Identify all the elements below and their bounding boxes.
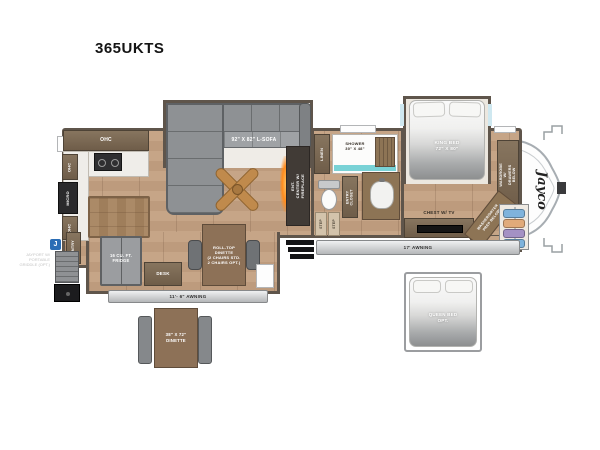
window: [488, 104, 492, 126]
kitchen-awning-label: 11'- 6" AWNING: [170, 294, 207, 299]
ohc-label: OHC: [100, 137, 112, 144]
chest-tv-label: CHEST W/ TV: [404, 210, 474, 216]
queen-bed-option: QUEEN BED OPT.: [404, 272, 482, 352]
vanity-sink: [370, 181, 394, 209]
toilet-tank: [318, 180, 340, 189]
page-title: 365UKTS: [95, 40, 164, 57]
sofa-label: 92" X 82" L-SOFA: [200, 137, 308, 144]
main-awning: 17' AWNING: [316, 240, 520, 255]
entry-steps: [286, 240, 316, 264]
dinette-table: 38" X 72" DINETTE: [154, 308, 198, 368]
ohc-cabinet: OHC: [62, 154, 78, 180]
faucet: [379, 178, 385, 182]
entry-closet: ENTRY CLOSET: [342, 176, 358, 218]
sofa-chaise: [166, 103, 224, 215]
burner: [111, 159, 119, 167]
hanging-clothes: [503, 209, 525, 218]
jayport-badge: J: [50, 239, 61, 250]
kitchen-ohc-cabinet: OHC: [63, 130, 149, 151]
shower-door: [375, 137, 395, 167]
shower: SHOWER 30" X 48": [332, 134, 398, 174]
shower-label: SHOWER 30" X 48": [335, 141, 375, 151]
desk-label: DESK: [156, 271, 169, 277]
fridge-label: 16 CU. FT. FRIDGE: [102, 253, 140, 264]
rolltop-dinette-table: ROLL-TOP DINETTE (2 CHAIRS STD. 2 CHAIRS…: [202, 224, 246, 286]
refrigerator: 16 CU. FT. FRIDGE: [100, 236, 142, 286]
freestanding-dinette-label: 38" X 72" DINETTE: [166, 332, 187, 343]
tv: [417, 225, 463, 233]
window: [340, 125, 376, 133]
jayport-mount: [55, 251, 79, 283]
kitchen-awning: 11'- 6" AWNING: [108, 290, 268, 303]
entertainment-center: ENT. CENTER W/ FIREPLACE: [286, 146, 310, 226]
burner: [98, 159, 106, 167]
hanging-clothes: [503, 229, 525, 238]
dinette-bench: [138, 316, 152, 364]
jayport-griddle: [54, 284, 80, 302]
queen-bed-label: QUEEN BED OPT.: [409, 312, 477, 324]
floorplan-canvas: 365UKTS Jayco OHC OHC MICRO: [0, 0, 600, 450]
hanging-clothes: [503, 219, 525, 228]
king-bed-label: KING BED 72" X 80": [409, 141, 485, 153]
interior-step: STEP: [315, 212, 327, 236]
interior-step: STEP: [328, 212, 340, 236]
rolltop-dinette-label: ROLL-TOP DINETTE (2 CHAIRS STD. 2 CHAIRS…: [207, 245, 240, 266]
toilet: [321, 189, 337, 210]
dinette-chair: [188, 240, 202, 270]
linen-closet: LINEN: [314, 134, 330, 174]
jayco-logo: Jayco: [534, 171, 549, 210]
window: [494, 126, 516, 133]
stove: [94, 153, 122, 171]
microwave: MICRO: [58, 182, 78, 214]
window: [256, 264, 274, 288]
chest-tv: [404, 218, 474, 238]
kitchen-island: [88, 196, 150, 238]
jayport-note: JAYPORT W/ PORTABLE GRIDDLE (OPT.): [6, 252, 50, 268]
desk: DESK: [144, 262, 182, 286]
window: [400, 104, 404, 126]
bed-pillow: [413, 101, 446, 117]
vanity: [362, 172, 400, 220]
main-awning-label: 17' AWNING: [404, 245, 433, 250]
bed-pillow: [449, 101, 482, 117]
freestanding-dinette: 38" X 72" DINETTE: [134, 304, 216, 370]
dinette-bench: [198, 316, 212, 364]
fan-hub: [232, 184, 243, 195]
